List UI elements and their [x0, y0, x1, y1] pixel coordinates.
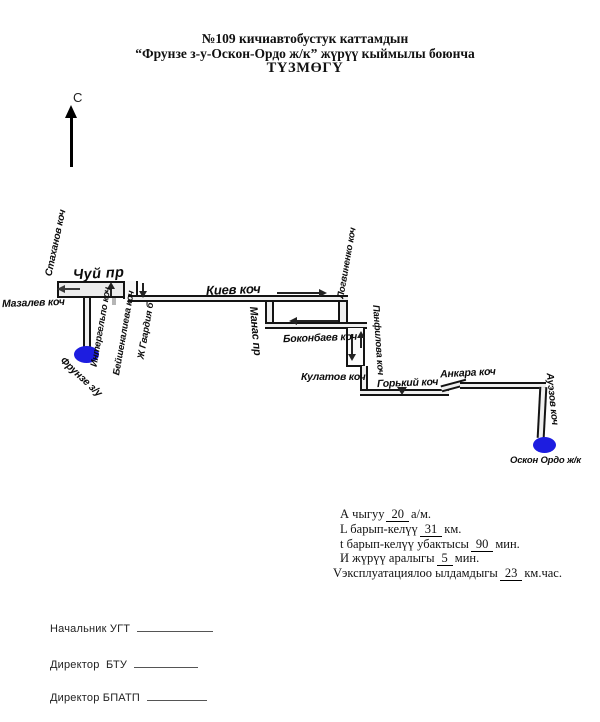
signature-director-btu: Директор БТУ: [50, 658, 198, 671]
stat-value-distance: 31: [420, 522, 443, 537]
road-intergelpo: [83, 296, 91, 349]
route-scheme-document: №109 кичиавтобустук каттамдын “Фрунзе з-…: [0, 0, 600, 722]
street-label-manas: Манас пр: [247, 306, 263, 356]
title-line-1: №109 кичиавтобустук каттамдын: [5, 31, 600, 46]
terminal-label-oskon-ordo: Оскон Ордо ж/к: [510, 455, 581, 466]
arrow-chui-west-shaft: [63, 288, 80, 290]
stat-row-speed: Vэксплуатациялоо ылдамдыгы23км.час.: [333, 566, 562, 581]
arrow-bokonbaev-west-shaft: [297, 320, 338, 322]
road-ankara: [460, 382, 546, 389]
stat-row-departures: А чыгуу20а/м.: [333, 507, 562, 522]
street-label-bokonbaev: Боконбаев коч: [283, 331, 357, 346]
street-label-kiev: Киев коч: [206, 281, 261, 298]
document-title: №109 кичиавтобустук каттамдын “Фрунзе з-…: [5, 31, 600, 76]
street-label-stakhanov: Стаханов коч: [44, 209, 69, 278]
signature-line: [147, 691, 207, 701]
stat-value-interval: 5: [437, 551, 453, 566]
title-line-3: ТҮЗМӨГҮ: [5, 61, 600, 76]
title-line-2: “Фрунзе з-у-Оскон-Ордо ж/к” жүрүү кыймыл…: [5, 46, 600, 61]
street-label-gorky: Горький коч: [377, 376, 439, 390]
street-label-gvardia: Ж Гвардия б: [136, 302, 157, 360]
street-label-panfilova: Панфилова коч: [370, 305, 386, 376]
street-label-ankara: Анкара коч: [440, 366, 496, 381]
signature-director-bpatp: Директор БПАТП: [50, 691, 207, 704]
arrow-panfilova-south-icon: [348, 354, 356, 361]
stat-value-departures: 20: [386, 507, 409, 522]
arrow-kiev-east-shaft: [277, 292, 320, 294]
stat-row-time: t барып-келүү убактысы90мин.: [333, 537, 562, 552]
road-stub-beishenalieva: [112, 298, 116, 305]
signature-line: [134, 658, 198, 668]
arrow-panfilova-north-icon: [357, 331, 365, 338]
signature-line: [137, 622, 213, 632]
terminal-oskon-ordo-marker: [533, 437, 556, 453]
signature-chief-ugt: Начальник УГТ: [50, 622, 213, 635]
street-label-logvinenko: Логвиненко коч: [335, 227, 358, 300]
north-arrow-shaft: [70, 117, 73, 167]
street-label-mazalev: Мазалев коч: [2, 296, 65, 310]
stat-value-speed: 23: [500, 566, 523, 581]
stat-row-interval: И жүрүү аралыгы5мин.: [333, 551, 562, 566]
street-label-auezov: Ауэзов коч: [544, 372, 560, 425]
route-statistics: А чыгуу20а/м. L барып-келүү31км. t барып…: [333, 507, 562, 581]
street-label-kulatov: Кулатов коч: [301, 371, 366, 383]
arrow-kiev-east-icon: [319, 289, 327, 297]
arrow-panfilova-north-shaft: [360, 337, 362, 348]
arrow-chui-west-icon: [57, 285, 65, 293]
stat-row-distance: L барып-келүү31км.: [333, 522, 562, 537]
street-label-chui: Чуй пр: [73, 265, 125, 284]
arrow-bokonbaev-west-icon: [289, 317, 297, 325]
arrow-kiev-entry-south-icon: [139, 291, 147, 298]
stat-value-time: 90: [471, 537, 494, 552]
compass-north-label: С: [73, 90, 82, 105]
street-label-intergelpo: Интергельпо коч: [89, 286, 114, 367]
